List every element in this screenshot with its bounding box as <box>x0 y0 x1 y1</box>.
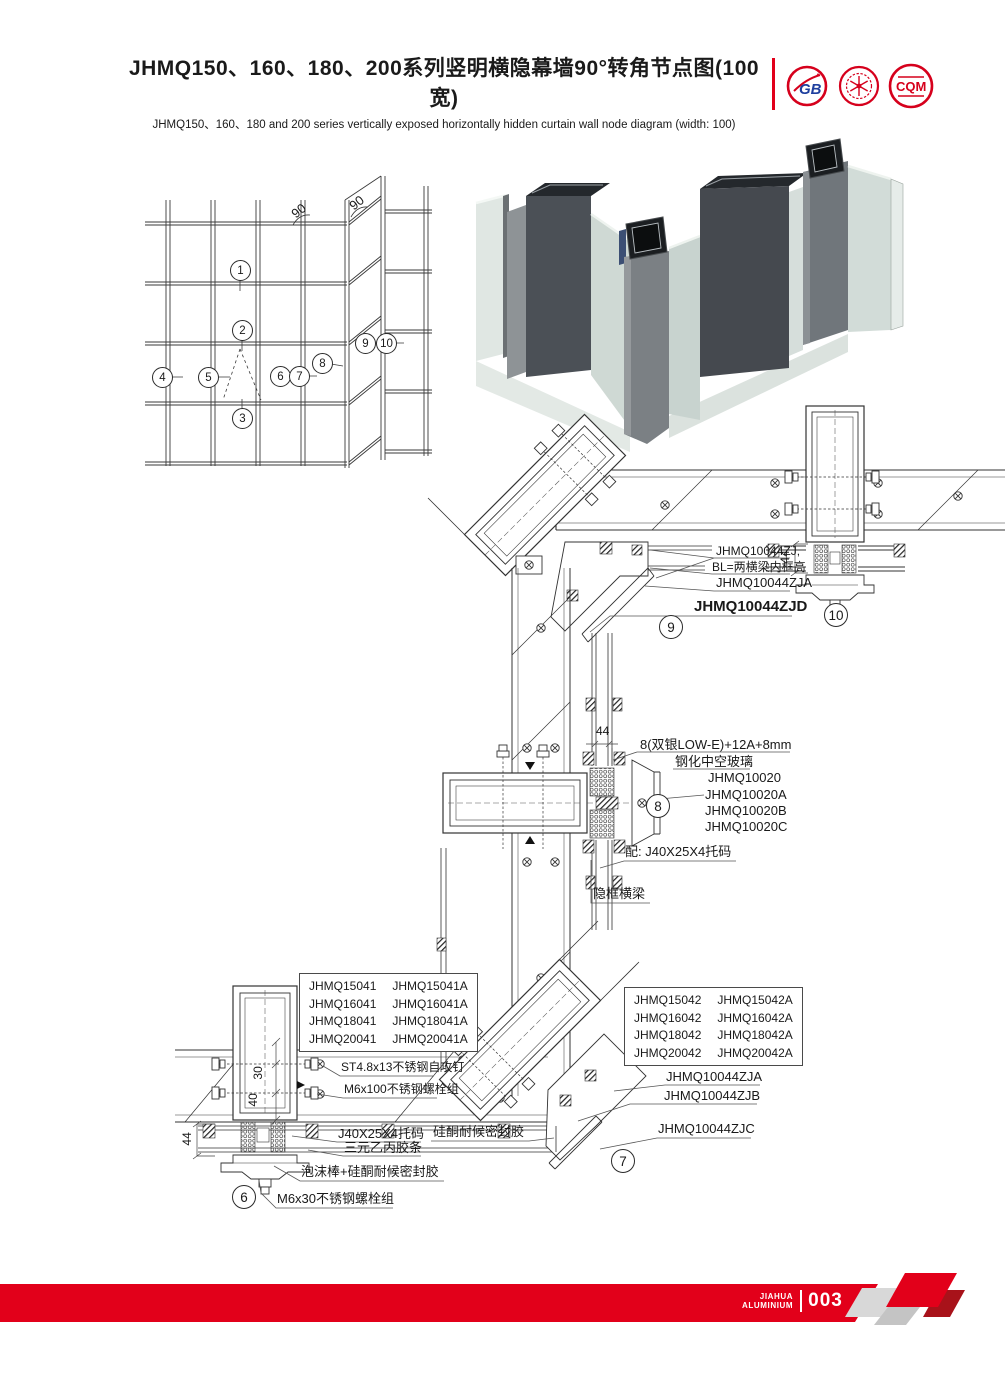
callout-2: 2 <box>232 320 253 341</box>
label-d6-bolt2: M6x30不锈钢螺栓组 <box>277 1192 394 1207</box>
callout-1: 1 <box>230 260 251 281</box>
label-d6-bolt: M6x100不锈钢螺栓组 <box>344 1083 459 1097</box>
label-d8-glass1: 8(双银LOW-E)+12A+8mm <box>640 738 791 753</box>
dim-44-d10: 44 <box>779 544 793 570</box>
callout-detail-9: 9 <box>659 615 683 639</box>
seal-logo <box>838 65 880 112</box>
label-d8-p2: JHMQ10020B <box>705 804 787 819</box>
label-d7-zjc: JHMQ10044ZJC <box>658 1122 755 1137</box>
header-divider <box>772 58 775 110</box>
leader-lines <box>259 550 792 1208</box>
dim-40-d6: 40 <box>247 1087 261 1113</box>
title-block: JHMQ150、160、180、200系列竖明横隐幕墙90°转角节点图(100宽… <box>120 52 768 132</box>
label-d6-sealant: 泡沫棒+硅酮耐候密封胶 <box>301 1165 439 1180</box>
brand-line2: ALUMINIUM <box>742 1301 793 1310</box>
dim-30-d6: 30 <box>252 1060 266 1086</box>
callout-5: 5 <box>198 367 219 388</box>
part-table-42: JHMQ15042JHMQ15042A JHMQ16042JHMQ16042A … <box>624 987 803 1066</box>
cqm-logo-text: CQM <box>896 79 926 94</box>
callout-6: 6 <box>270 366 291 387</box>
callout-3: 3 <box>232 408 253 429</box>
dim-44-d6: 44 <box>181 1126 195 1152</box>
label-d6-gasket: 三元乙丙胶条 <box>344 1141 422 1156</box>
elevation-schematic <box>145 176 432 468</box>
brand-line1: JIAHUA <box>742 1292 793 1301</box>
label-d8-glass2: 钢化中空玻璃 <box>675 755 753 770</box>
page-subtitle: JHMQ150、160、180 and 200 series verticall… <box>120 116 768 132</box>
dim-44-d8: 44 <box>596 725 609 739</box>
label-d6-screw: ST4.8x13不锈钢自攻钉 <box>341 1061 464 1075</box>
cqm-logo: CQM <box>888 63 934 114</box>
callout-7: 7 <box>289 366 310 387</box>
page-number: 003 <box>808 1290 843 1312</box>
label-d7-zjb: JHMQ10044ZJB <box>664 1089 760 1104</box>
label-d7-sealant: 硅酮耐候密封胶 <box>433 1125 524 1140</box>
callout-4: 4 <box>152 367 173 388</box>
label-d9-part3: JHMQ10044ZJD <box>694 598 807 615</box>
gb-logo: GB <box>786 65 828 112</box>
drawing-sheet: JHMQ150、160、180、200系列竖明横隐幕墙90°转角节点图(100宽… <box>0 0 1005 1373</box>
label-d8-p0: JHMQ10020 <box>708 771 781 786</box>
footer-decoration <box>840 1266 1005 1332</box>
callout-8: 8 <box>312 353 333 374</box>
callout-detail-8: 8 <box>646 794 670 818</box>
callout-detail-7: 7 <box>611 1149 635 1173</box>
callout-detail-10: 10 <box>824 603 848 627</box>
part-table-41: JHMQ15041JHMQ15041A JHMQ16041JHMQ16041A … <box>299 973 478 1052</box>
label-d7-zja: JHMQ10044ZJA <box>666 1070 762 1085</box>
callout-9: 9 <box>355 333 376 354</box>
gb-logo-text: GB <box>799 81 822 98</box>
technical-drawing <box>0 0 1005 1373</box>
callout-10: 10 <box>376 333 397 354</box>
detail-8-drawing <box>443 745 660 853</box>
label-d8-p1: JHMQ10020A <box>705 788 787 803</box>
label-d9-part2: JHMQ10044ZJA <box>716 576 812 591</box>
callout-detail-6: 6 <box>232 1185 256 1209</box>
footer-brand: JIAHUA ALUMINIUM 003 <box>742 1290 843 1312</box>
label-d8-p3: JHMQ10020C <box>705 820 787 835</box>
label-d8-beam: 隐框横梁 <box>593 887 645 902</box>
render-3d <box>476 139 903 452</box>
footer-separator <box>800 1290 802 1312</box>
label-d8-bracket: 配: J40X25X4托码 <box>625 845 731 860</box>
page-title: JHMQ150、160、180、200系列竖明横隐幕墙90°转角节点图(100宽… <box>120 52 768 112</box>
